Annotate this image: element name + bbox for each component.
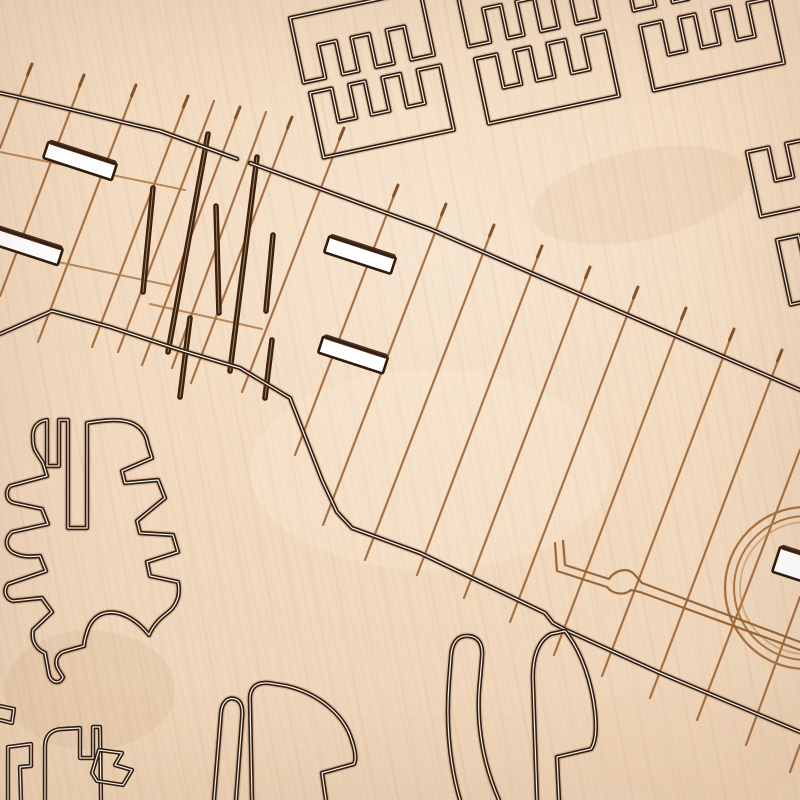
laser-cut-artwork [0, 0, 800, 800]
through-cut-slot [772, 546, 800, 589]
through-cut-slot [0, 226, 63, 265]
plywood-sheet-photo [0, 0, 800, 800]
through-cut-slot [324, 236, 396, 274]
roundabout-circle-engraving [725, 507, 800, 669]
through-cut-slot [43, 141, 117, 180]
